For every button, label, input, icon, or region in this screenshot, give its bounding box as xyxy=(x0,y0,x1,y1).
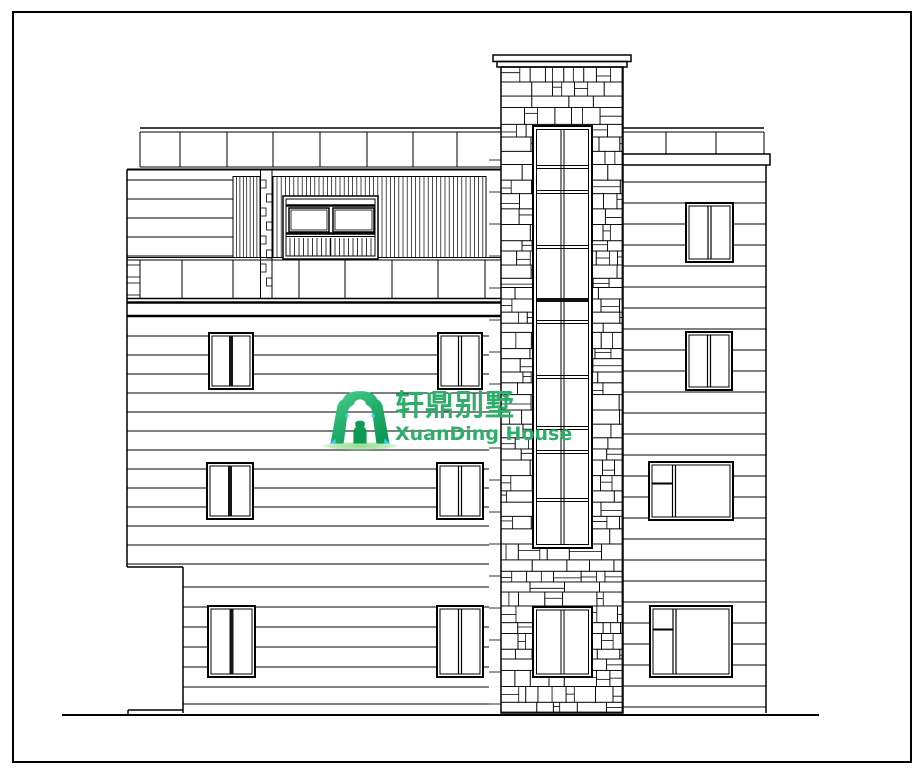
vessel-shape xyxy=(353,421,366,444)
cyan-dot-left xyxy=(345,414,349,418)
brand-name-en: XuanDing House xyxy=(395,425,572,444)
elevation-drawing-canvas: 轩鼎别墅 XuanDing House xyxy=(0,0,924,774)
ground-line xyxy=(62,710,819,715)
cyan-dot-right xyxy=(371,414,375,418)
balcony-window xyxy=(283,196,378,259)
left-roof-parapet xyxy=(140,128,501,167)
watermark: 轩鼎别墅 XuanDing House xyxy=(305,381,520,457)
xuanding-gate-icon xyxy=(319,386,401,452)
brand-text-block: 轩鼎别墅 XuanDing House xyxy=(395,391,572,444)
balcony-railing-band xyxy=(127,260,501,299)
right-roof-parapet xyxy=(623,128,770,165)
brand-name-cn: 轩鼎别墅 xyxy=(395,391,572,420)
